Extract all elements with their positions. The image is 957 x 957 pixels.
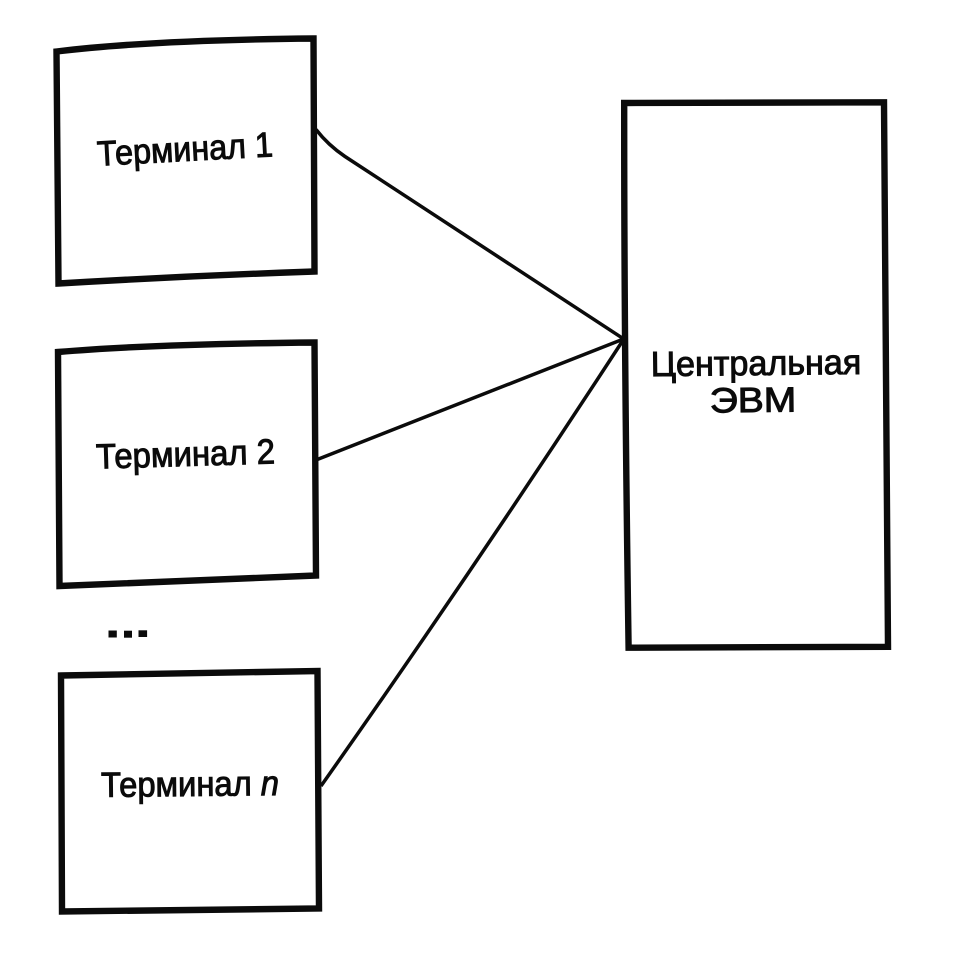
svg-text:Центральная: Центральная bbox=[651, 343, 862, 384]
svg-text:Терминал 2: Терминал 2 bbox=[95, 432, 275, 476]
svg-text:ЭВМ: ЭВМ bbox=[710, 381, 797, 421]
svg-text:Терминал n: Терминал n bbox=[101, 764, 279, 805]
